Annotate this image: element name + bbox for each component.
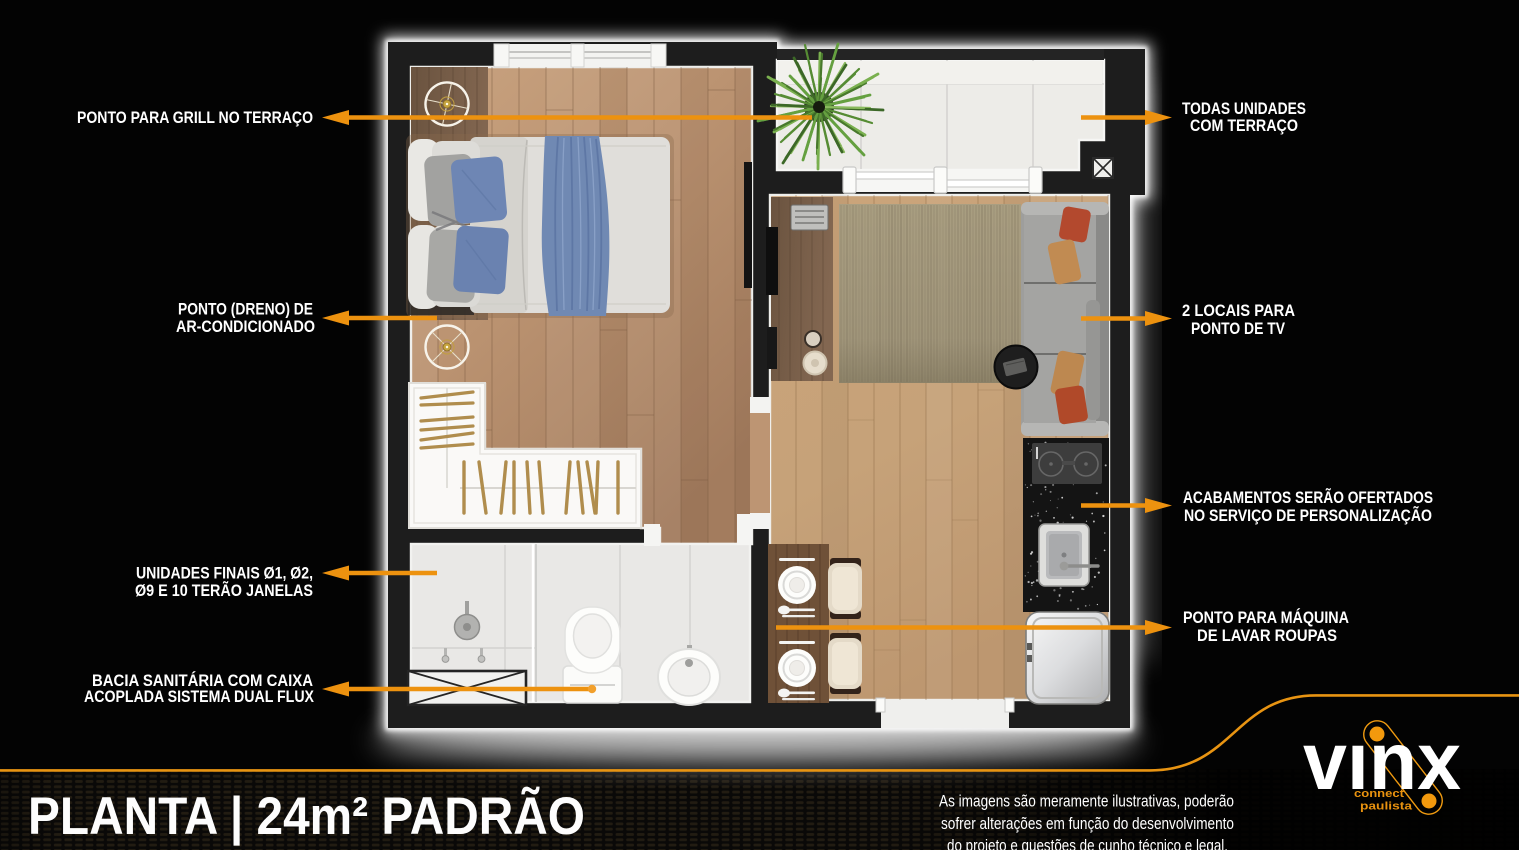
svg-text:sofrer alterações em função do: sofrer alterações em função do desenvolv…	[941, 814, 1234, 833]
svg-text:PONTO PARA MÁQUINA: PONTO PARA MÁQUINA	[1183, 608, 1349, 627]
svg-text:NO SERVIÇO DE PERSONALIZAÇÃO: NO SERVIÇO DE PERSONALIZAÇÃO	[1184, 505, 1432, 525]
svg-text:ACABAMENTOS SERÃO OFERTADOS: ACABAMENTOS SERÃO OFERTADOS	[1183, 487, 1433, 507]
svg-text:PONTO DE TV: PONTO DE TV	[1191, 320, 1285, 338]
svg-text:paulista: paulista	[1360, 801, 1413, 813]
svg-text:2 LOCAIS PARA: 2 LOCAIS PARA	[1182, 302, 1295, 320]
svg-text:connect: connect	[1354, 788, 1404, 800]
svg-text:TODAS UNIDADES: TODAS UNIDADES	[1182, 100, 1306, 118]
svg-text:DE LAVAR ROUPAS: DE LAVAR ROUPAS	[1197, 627, 1337, 645]
svg-text:PONTO (DRENO) DE: PONTO (DRENO) DE	[178, 301, 313, 319]
svg-text:do projeto e questões de cunho: do projeto e questões de cunho técnico e…	[947, 836, 1228, 850]
svg-text:AR-CONDICIONADO: AR-CONDICIONADO	[176, 318, 315, 336]
svg-text:PLANTA | 24m² PADRÃO: PLANTA | 24m² PADRÃO	[28, 786, 585, 847]
svg-text:ACOPLADA SISTEMA DUAL FLUX: ACOPLADA SISTEMA DUAL FLUX	[84, 688, 314, 706]
svg-text:COM TERRAÇO: COM TERRAÇO	[1190, 117, 1298, 135]
svg-text:As imagens são meramente ilust: As imagens são meramente ilustrativas, p…	[939, 792, 1234, 811]
svg-text:Ø9 E 10 TERÃO JANELAS: Ø9 E 10 TERÃO JANELAS	[135, 580, 313, 600]
svg-text:PONTO PARA GRILL NO TERRAÇO: PONTO PARA GRILL NO TERRAÇO	[77, 109, 313, 127]
svg-text:UNIDADES FINAIS Ø1, Ø2,: UNIDADES FINAIS Ø1, Ø2,	[136, 565, 313, 583]
